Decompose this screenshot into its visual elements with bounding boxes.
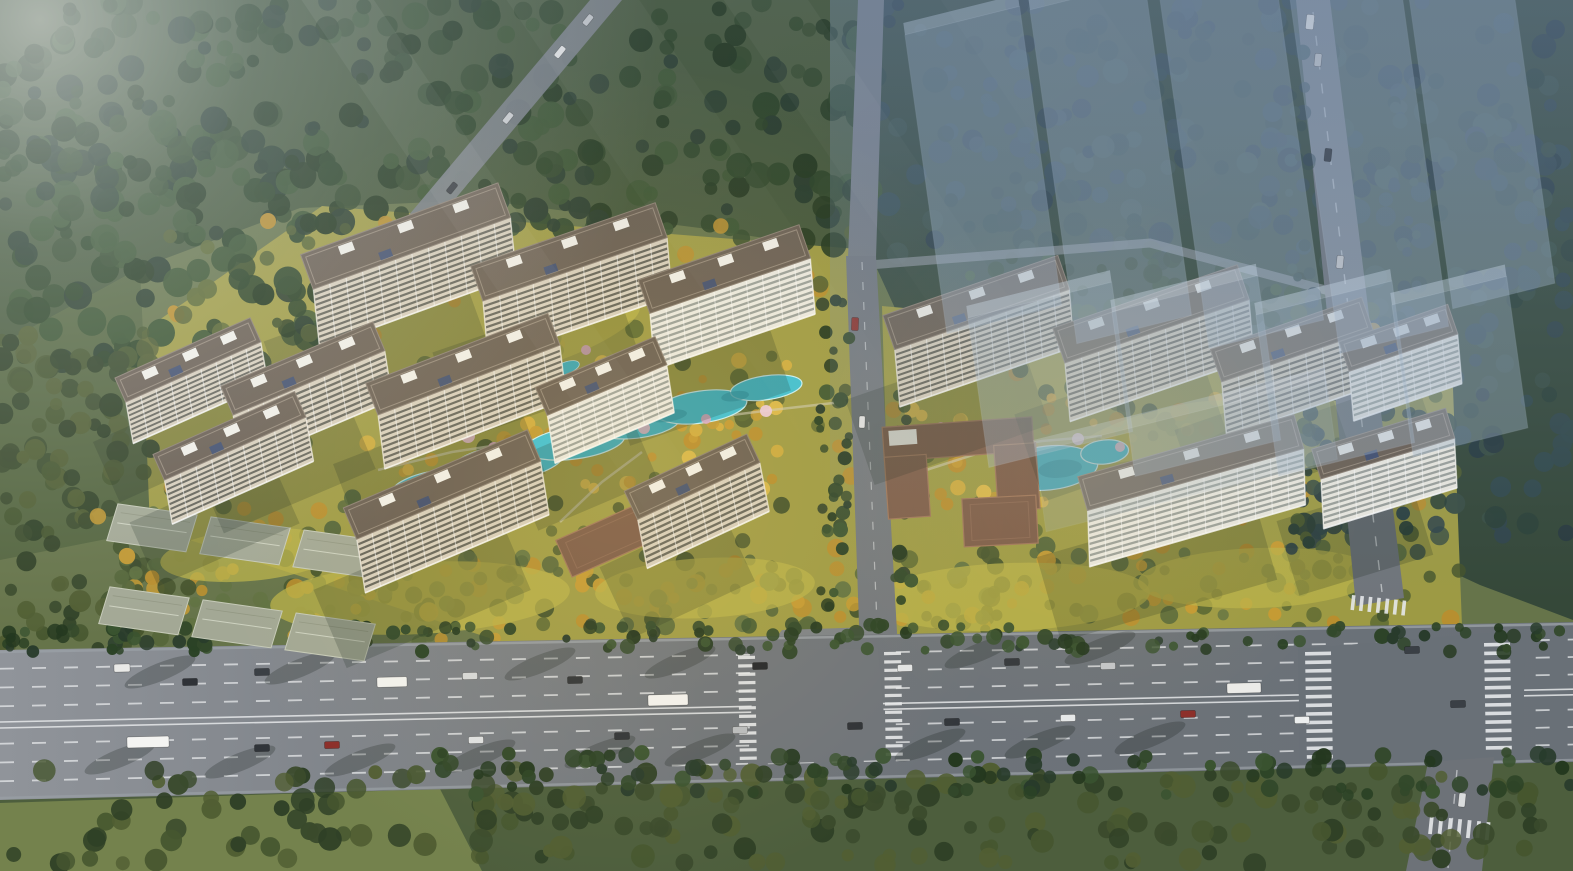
sun-glare [0, 0, 1573, 871]
aerial-rendering-viewport [0, 0, 1573, 871]
atmosphere-layer [0, 0, 1573, 871]
aerial-site-rendering [0, 0, 1573, 871]
